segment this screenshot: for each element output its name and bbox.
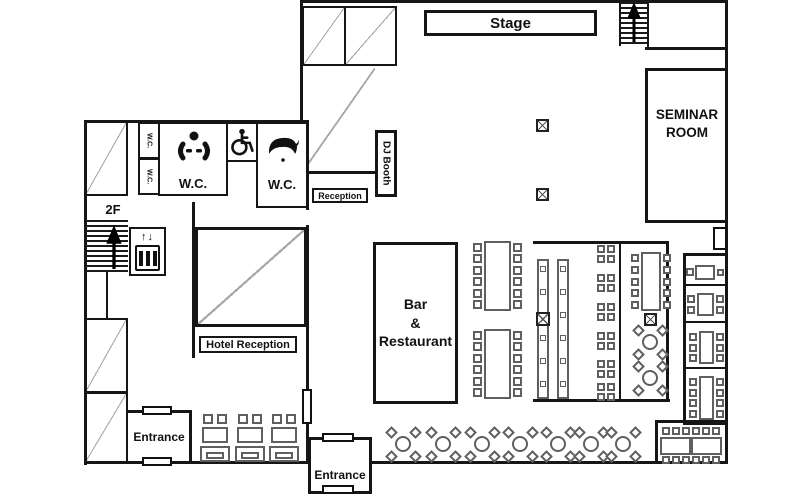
- round-table: [395, 436, 411, 452]
- table: [202, 427, 228, 443]
- door: [142, 406, 172, 415]
- chair: [597, 370, 605, 378]
- chair: [607, 332, 615, 340]
- chair: [597, 342, 605, 350]
- chair: [513, 266, 522, 275]
- floor-plan: Stage SEMINAR ROOM DJ Booth Reception W.…: [0, 0, 800, 494]
- chair: [217, 414, 227, 424]
- diamond-chair: [464, 426, 477, 439]
- chair: [473, 354, 482, 363]
- table: [484, 241, 511, 311]
- chair: [702, 456, 710, 464]
- chair: [716, 295, 724, 303]
- wall: [645, 220, 727, 223]
- table: [660, 437, 691, 455]
- chair: [473, 377, 482, 386]
- chair: [717, 269, 724, 276]
- chair: [607, 284, 615, 292]
- sofa: [269, 446, 299, 462]
- stool: [540, 335, 546, 341]
- reception-label: Reception: [312, 188, 368, 203]
- chair: [513, 254, 522, 263]
- pillar: [536, 188, 549, 201]
- stool: [560, 358, 566, 364]
- table: [237, 427, 263, 443]
- table: [695, 265, 715, 280]
- chair: [686, 268, 694, 276]
- wall: [106, 272, 108, 318]
- entrance-west-label: Entrance: [128, 429, 190, 444]
- dj-booth-label: DJ Booth: [381, 141, 392, 185]
- diamond-chair: [526, 426, 539, 439]
- entrance-south-text: Entrance: [314, 468, 365, 482]
- wall: [533, 241, 669, 244]
- wall: [84, 120, 87, 465]
- chair: [597, 360, 605, 368]
- hotel-reception-desk: [195, 227, 307, 327]
- storage-box: [84, 121, 128, 196]
- wc-right-label: W.C.: [268, 177, 296, 192]
- diamond-chair: [632, 384, 645, 397]
- hotel-reception-text: Hotel Reception: [206, 339, 290, 351]
- storage-box: [84, 318, 128, 393]
- chair: [238, 414, 248, 424]
- diamond-chair: [632, 324, 645, 337]
- wall: [192, 202, 195, 358]
- chair: [513, 342, 522, 351]
- wall: [300, 0, 728, 3]
- chair: [597, 303, 605, 311]
- chair: [597, 313, 605, 321]
- diamond-chair: [629, 426, 642, 439]
- diamond-chair: [632, 348, 645, 361]
- chair: [252, 414, 262, 424]
- chair: [473, 342, 482, 351]
- elevator-arrows: ↑↓: [141, 231, 154, 243]
- wall: [619, 241, 621, 401]
- table: [699, 376, 714, 420]
- stool: [540, 289, 546, 295]
- table: [691, 437, 722, 455]
- chair: [473, 289, 482, 298]
- chair: [663, 289, 671, 297]
- chair: [716, 410, 724, 418]
- chair: [597, 245, 605, 253]
- diamond-chair: [605, 426, 618, 439]
- chair: [687, 295, 695, 303]
- stage-label: Stage: [490, 15, 531, 32]
- table: [699, 331, 714, 364]
- door: [322, 433, 354, 442]
- storage-box: [84, 392, 128, 463]
- chair: [597, 383, 605, 391]
- chair: [672, 456, 680, 464]
- table: [641, 252, 661, 311]
- chair: [513, 300, 522, 309]
- chair: [203, 414, 213, 424]
- stool: [560, 289, 566, 295]
- floor-2f-text: 2F: [105, 202, 120, 217]
- sofa-seat: [241, 452, 259, 459]
- chair: [689, 389, 697, 397]
- floor-2f-label: 2F: [98, 201, 128, 217]
- chair: [473, 331, 482, 340]
- stairs-2f-up-arrow-icon: [103, 221, 125, 273]
- chair: [607, 383, 615, 391]
- chair: [672, 427, 680, 435]
- seminar-room-label: SEMINAR ROOM: [648, 98, 726, 150]
- wall: [683, 253, 728, 256]
- chair: [687, 306, 695, 314]
- wall: [655, 420, 728, 423]
- stool: [560, 266, 566, 272]
- chair: [682, 456, 690, 464]
- wall: [683, 423, 728, 425]
- wall: [308, 437, 311, 494]
- round-table: [642, 334, 658, 350]
- diamond-chair: [449, 426, 462, 439]
- chair: [597, 393, 605, 401]
- chair: [513, 377, 522, 386]
- chair: [631, 254, 639, 262]
- round-table: [615, 436, 631, 452]
- wc-main-label: W.C.: [179, 176, 207, 191]
- diamond-chair: [488, 426, 501, 439]
- stool: [540, 266, 546, 272]
- seminar-room-text: SEMINAR ROOM: [656, 106, 718, 141]
- chair: [631, 301, 639, 309]
- chair: [607, 370, 615, 378]
- chair: [607, 255, 615, 263]
- chair: [682, 427, 690, 435]
- chair: [716, 306, 724, 314]
- chair: [473, 277, 482, 286]
- chair: [631, 289, 639, 297]
- chair: [663, 278, 671, 286]
- chair: [712, 427, 720, 435]
- chair: [473, 388, 482, 397]
- chair: [689, 354, 697, 362]
- wheelchair-icon: [229, 128, 255, 156]
- storage-box: [302, 6, 346, 66]
- round-table: [583, 436, 599, 452]
- wall: [645, 68, 727, 71]
- chair: [716, 378, 724, 386]
- chair: [597, 284, 605, 292]
- chair: [513, 243, 522, 252]
- wc-accessible-room: [226, 122, 258, 162]
- door: [302, 389, 312, 424]
- table: [484, 329, 511, 399]
- sofa-seat: [206, 452, 224, 459]
- diamond-chair: [540, 426, 553, 439]
- chair: [716, 399, 724, 407]
- bar-counter: [537, 259, 549, 399]
- wall: [645, 47, 727, 50]
- wall: [683, 367, 728, 369]
- chair: [607, 393, 615, 401]
- chair: [631, 266, 639, 274]
- wall: [647, 0, 649, 50]
- wc-small-top-label: W.C.: [146, 133, 153, 148]
- chair: [663, 254, 671, 262]
- stool: [540, 381, 546, 387]
- chair: [689, 344, 697, 352]
- chair: [286, 414, 296, 424]
- storage-box: [344, 6, 397, 66]
- reception-text: Reception: [318, 191, 362, 201]
- chair: [662, 456, 670, 464]
- door: [322, 485, 354, 494]
- chair: [473, 365, 482, 374]
- chair: [607, 303, 615, 311]
- chair: [597, 274, 605, 282]
- round-table: [474, 436, 490, 452]
- chair: [473, 266, 482, 275]
- wall: [655, 420, 658, 463]
- diamond-chair: [425, 426, 438, 439]
- chair: [689, 399, 697, 407]
- bar-restaurant-label: Bar & Restaurant: [379, 295, 452, 352]
- entrance-west-text: Entrance: [133, 430, 184, 444]
- dj-booth: DJ Booth: [375, 130, 397, 197]
- wall: [308, 171, 377, 174]
- sofa: [200, 446, 230, 462]
- wall: [683, 253, 686, 425]
- chair: [607, 342, 615, 350]
- door: [142, 457, 172, 466]
- bar-restaurant-room: Bar & Restaurant: [373, 242, 458, 404]
- chair: [473, 243, 482, 252]
- chair: [513, 331, 522, 340]
- stool: [560, 381, 566, 387]
- chair: [607, 313, 615, 321]
- bar-counter: [557, 259, 569, 399]
- diamond-chair: [502, 426, 515, 439]
- chair: [663, 266, 671, 274]
- hotel-reception-label: Hotel Reception: [199, 336, 297, 353]
- chair: [716, 333, 724, 341]
- male-wc-icon: [266, 134, 300, 164]
- chair: [689, 333, 697, 341]
- stairs-stage-up-arrow-icon: [624, 2, 644, 44]
- chair: [689, 378, 697, 386]
- hatch-area: [303, 68, 375, 171]
- chair: [663, 301, 671, 309]
- chair: [513, 277, 522, 286]
- table: [697, 293, 714, 316]
- wall: [683, 284, 728, 286]
- diamond-chair: [385, 426, 398, 439]
- sofa-seat: [275, 452, 293, 459]
- chair: [513, 365, 522, 374]
- chair: [597, 255, 605, 263]
- stool: [560, 335, 566, 341]
- chair: [702, 427, 710, 435]
- chair: [513, 289, 522, 298]
- chair: [473, 254, 482, 263]
- chair: [607, 360, 615, 368]
- chair: [716, 354, 724, 362]
- diamond-chair: [409, 426, 422, 439]
- chair: [473, 300, 482, 309]
- sofa: [235, 446, 265, 462]
- chair: [662, 427, 670, 435]
- chair: [597, 332, 605, 340]
- stool: [560, 312, 566, 318]
- round-table: [642, 370, 658, 386]
- chair: [692, 456, 700, 464]
- female-wc-icon: [175, 130, 213, 164]
- round-table: [435, 436, 451, 452]
- round-table: [512, 436, 528, 452]
- chair: [689, 410, 697, 418]
- round-table: [550, 436, 566, 452]
- stool: [540, 358, 546, 364]
- chair: [607, 245, 615, 253]
- chair: [607, 274, 615, 282]
- wall: [306, 225, 309, 463]
- elevator-icon: [135, 245, 160, 271]
- chair: [513, 388, 522, 397]
- chair: [272, 414, 282, 424]
- wc-main-room: W.C.: [158, 122, 228, 196]
- chair: [712, 456, 720, 464]
- chair: [513, 354, 522, 363]
- wc-small-bottom-label: W.C.: [146, 169, 153, 184]
- table: [271, 427, 297, 443]
- diamond-chair: [632, 360, 645, 373]
- wall: [369, 437, 372, 494]
- elevator: ↑↓: [129, 227, 166, 276]
- wc-right-room: W.C.: [256, 122, 308, 208]
- wc-small-room-top: W.C.: [138, 122, 160, 159]
- pillar: [536, 119, 549, 132]
- chair: [716, 344, 724, 352]
- entrance-south-label: Entrance: [308, 467, 372, 482]
- door: [713, 227, 727, 250]
- pillar: [536, 312, 550, 326]
- pillar: [644, 313, 657, 326]
- wc-small-room-bottom: W.C.: [138, 158, 160, 195]
- stage-room: Stage: [424, 10, 597, 36]
- wall: [683, 321, 728, 323]
- chair: [692, 427, 700, 435]
- chair: [716, 389, 724, 397]
- diamond-chair: [573, 426, 586, 439]
- chair: [631, 278, 639, 286]
